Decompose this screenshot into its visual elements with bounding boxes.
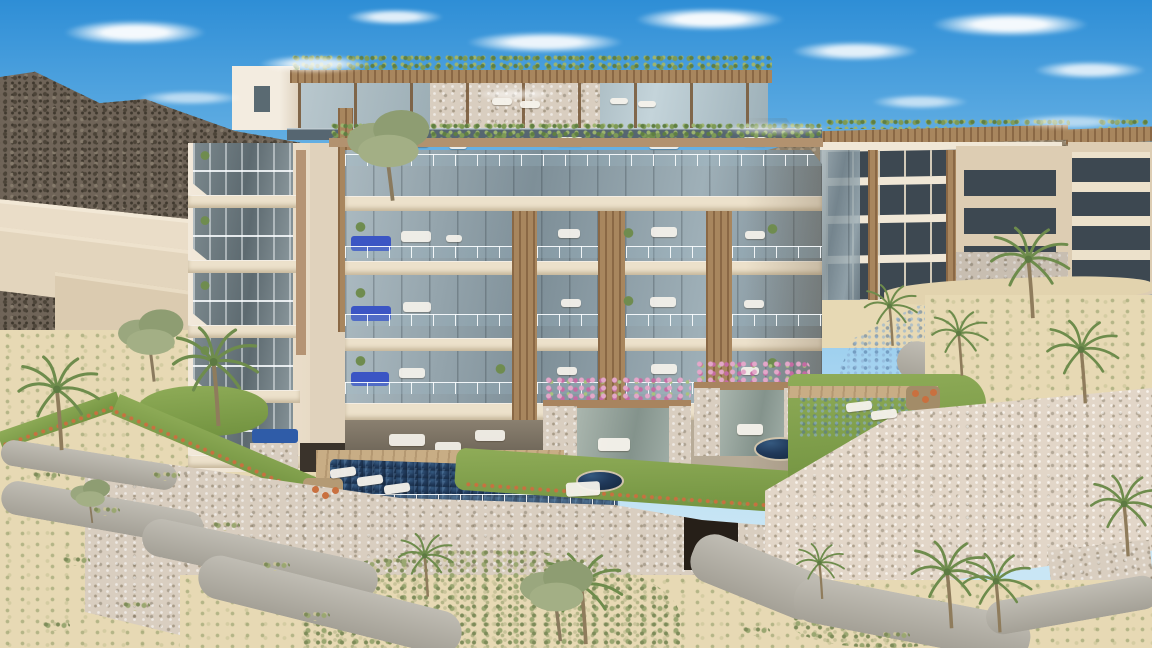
cloud — [330, 6, 460, 26]
glass-railing — [345, 246, 512, 258]
balcony-plant — [355, 288, 366, 301]
lounge-furniture — [566, 481, 601, 497]
scrub-tuft — [300, 610, 330, 621]
wood-accent — [868, 150, 878, 300]
balcony-furniture — [399, 368, 425, 378]
palm-tree — [980, 228, 1086, 320]
glass-railing — [626, 314, 706, 326]
glass-railing — [537, 314, 598, 326]
scrub-tuft — [120, 600, 150, 611]
balcony-plant — [355, 356, 366, 369]
scrub-tuft — [30, 470, 60, 481]
palm-tree — [790, 544, 854, 600]
olive-tree — [109, 299, 208, 385]
stone-pier — [694, 388, 720, 456]
palm-tree — [7, 357, 116, 452]
bougainvillea-canopy — [543, 376, 691, 402]
glass-railing — [732, 314, 822, 326]
balcony-furniture — [651, 227, 677, 237]
cloud — [905, 8, 1115, 38]
lounge-furniture — [598, 438, 630, 451]
corner-balconies — [820, 150, 860, 300]
palm-tree — [1037, 321, 1134, 405]
balcony-plant — [767, 224, 778, 237]
balcony-furniture — [389, 434, 425, 446]
cloud — [855, 92, 985, 110]
scrub-tuft — [40, 620, 70, 631]
scrub-tuft — [210, 520, 240, 531]
glass-railing — [626, 246, 706, 258]
olive-tree — [336, 97, 460, 205]
balcony-plant — [200, 216, 210, 228]
balcony-furniture — [403, 302, 431, 312]
balcony-plant — [495, 364, 506, 377]
balcony-furniture — [745, 231, 765, 239]
cloud — [610, 4, 810, 32]
firepit-cushion — [332, 487, 339, 494]
balcony-fascia — [188, 260, 300, 273]
glass-railing — [345, 382, 512, 394]
cloud — [700, 120, 850, 136]
wood-accent — [946, 150, 956, 300]
balcony-furniture — [401, 231, 431, 242]
scrub-tuft — [150, 470, 180, 481]
lounge-furniture — [492, 98, 512, 105]
firepit-cushion — [912, 390, 919, 397]
palm-tree — [857, 285, 928, 347]
palm-tree — [1081, 476, 1152, 558]
cloud — [1015, 58, 1152, 80]
cloud — [440, 28, 650, 54]
glass-railing — [345, 314, 512, 326]
balcony-furniture — [557, 367, 577, 375]
balcony-fascia — [188, 195, 300, 208]
balcony-plant — [200, 281, 210, 293]
cloud — [40, 16, 230, 46]
balcony-plant — [623, 228, 634, 241]
balcony-plant — [355, 222, 366, 235]
glass-railing — [732, 246, 822, 258]
cloud — [990, 112, 1150, 130]
cloud — [240, 52, 390, 74]
olive-tree — [65, 473, 125, 525]
lounge-furniture — [520, 101, 540, 108]
entry-spa — [252, 429, 298, 443]
balcony-furniture — [651, 364, 677, 374]
cloud — [770, 38, 940, 62]
wood-slat-panel — [512, 211, 537, 420]
balcony-plant — [623, 296, 634, 309]
scrub-tuft — [260, 560, 290, 571]
olive-tree — [510, 549, 620, 645]
rendering-canvas — [0, 0, 1152, 648]
scrub-tuft — [740, 625, 770, 636]
firepit-cushion — [312, 486, 319, 493]
glass-railing — [537, 246, 598, 258]
scrub-tuft — [60, 555, 90, 566]
balcony-furniture — [558, 229, 580, 238]
balcony-furniture — [650, 297, 676, 307]
balcony-furniture — [744, 300, 764, 308]
wood-feature-stripe — [296, 150, 306, 355]
scrub-tuft — [880, 630, 910, 641]
firepit-cushion — [922, 396, 929, 403]
pergola-beam — [290, 70, 772, 83]
palm-tree — [954, 554, 1046, 634]
lounge-furniture — [610, 98, 628, 104]
lounge-furniture — [737, 424, 763, 435]
balcony-plant — [200, 151, 210, 163]
balcony-furniture — [446, 235, 462, 242]
palm-tree — [924, 311, 1000, 377]
firepit-cushion — [322, 492, 329, 499]
cloud — [460, 86, 570, 101]
firepit-cushion — [930, 389, 937, 396]
lounge-furniture — [638, 101, 656, 107]
palm-tree — [391, 534, 465, 598]
balcony-furniture — [561, 299, 581, 307]
balcony-furniture — [475, 430, 505, 441]
cloud — [120, 88, 260, 106]
